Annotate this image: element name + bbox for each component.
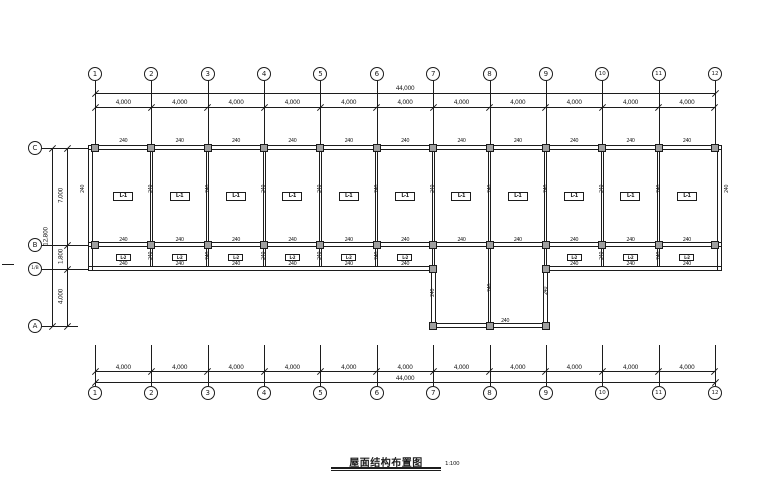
beam-label: 240 [148, 181, 154, 197]
beam-label: 240 [228, 138, 244, 144]
slab-label: L-2 [116, 254, 131, 261]
column-marker [542, 322, 550, 330]
axis-bubble: 10 [595, 386, 609, 400]
dimension-label: 4,000 [208, 99, 264, 106]
beam-label: 240 [566, 261, 582, 267]
column-marker [91, 241, 99, 249]
axis-bubble: 7 [426, 67, 440, 81]
grid-line [95, 81, 96, 144]
beam-label: 240 [453, 138, 469, 144]
beam-label: 240 [679, 261, 695, 267]
slab-label: L-2 [228, 254, 243, 261]
column-marker [486, 144, 494, 152]
dimension-line [95, 107, 715, 108]
axis-bubble: 5 [313, 67, 327, 81]
dimension-label: 4,000 [321, 364, 377, 371]
beam-label: 240 [656, 181, 662, 197]
axis-bubble: 1/B [28, 262, 42, 276]
beam-label: 240 [656, 248, 662, 264]
dimension-label: 4,000 [377, 364, 433, 371]
beam-label: 240 [317, 248, 323, 264]
axis-bubble: 2 [144, 67, 158, 81]
slab-label: L-1 [282, 192, 302, 201]
slab-label: L-1 [113, 192, 133, 201]
grid-line [715, 345, 716, 386]
wall-line [88, 145, 93, 271]
axis-bubble: 12 [708, 386, 722, 400]
grid-line [715, 81, 716, 144]
axis-bubble: 6 [370, 386, 384, 400]
axis-bubble: A [28, 319, 42, 333]
dimension-label: 4,000 [546, 99, 602, 106]
beam-label: 240 [543, 283, 549, 299]
column-marker [429, 265, 437, 273]
axis-bubble: 10 [595, 67, 609, 81]
beam-label: 240 [679, 237, 695, 243]
beam-label: 240 [148, 248, 154, 264]
axis-bubble: 1 [88, 67, 102, 81]
grid-line [433, 81, 434, 144]
column-marker [260, 144, 268, 152]
axis-bubble: 4 [257, 386, 271, 400]
axis-bubble: 2 [144, 386, 158, 400]
wall-line [717, 145, 722, 271]
beam-label: 240 [80, 181, 86, 197]
slab-label: L-1 [226, 192, 246, 201]
column-marker [542, 265, 550, 273]
dimension-label: 4,000 [95, 99, 151, 106]
grid-line [151, 81, 152, 144]
beam-label: 240 [566, 138, 582, 144]
axis-bubble: B [28, 238, 42, 252]
axis-bubble: 6 [370, 67, 384, 81]
beam-label: 240 [341, 138, 357, 144]
beam-label: 240 [228, 237, 244, 243]
beam-label: 240 [374, 248, 380, 264]
grid-line [264, 81, 265, 144]
beam-label: 240 [487, 280, 493, 296]
drawing-canvas: 屋面结构布置图 1:100 12345678910111244,0004,000… [0, 0, 780, 496]
beam-label: 240 [622, 237, 638, 243]
dimension-label: 4,000 [377, 99, 433, 106]
axis-bubble: 5 [313, 386, 327, 400]
column-marker [486, 241, 494, 249]
beam-label: 240 [453, 237, 469, 243]
beam-label: 240 [430, 181, 436, 197]
beam-label: 240 [487, 181, 493, 197]
dimension-label: 4,000 [602, 364, 658, 371]
beam-label: 240 [172, 237, 188, 243]
beam-label: 240 [566, 237, 582, 243]
beam-label: 240 [115, 237, 131, 243]
dimension-label: 4,000 [264, 364, 320, 371]
beam-label: 240 [205, 181, 211, 197]
slab-label: L-2 [285, 254, 300, 261]
dimension-label: 4,000 [321, 99, 377, 106]
beam-label: 240 [599, 248, 605, 264]
wall-line [88, 266, 436, 271]
dimension-label: 4,000 [95, 364, 151, 371]
beam-label: 240 [115, 138, 131, 144]
beam-label: 240 [374, 181, 380, 197]
beam-label: 240 [284, 237, 300, 243]
dimension-label: 44,000 [377, 375, 433, 382]
slab-label: L-2 [623, 254, 638, 261]
dimension-label: 4,000 [152, 364, 208, 371]
beam-label: 240 [510, 138, 526, 144]
dimension-label: 4,000 [546, 364, 602, 371]
dimension-label: 4,000 [490, 364, 546, 371]
axis-bubble: 1 [88, 386, 102, 400]
beam-label: 240 [284, 138, 300, 144]
beam-label: 240 [679, 138, 695, 144]
beam-label: 240 [172, 138, 188, 144]
slab-label: L-1 [620, 192, 640, 201]
grid-line [546, 81, 547, 144]
slab-label: L-1 [508, 192, 528, 201]
grid-line [208, 81, 209, 144]
axis-bubble: 9 [539, 386, 553, 400]
wall-line [88, 242, 722, 247]
beam-label: 240 [115, 261, 131, 267]
title-underline [331, 467, 441, 469]
column-marker [655, 144, 663, 152]
beam-label: 240 [341, 237, 357, 243]
column-marker [542, 241, 550, 249]
slab-label: L-2 [567, 254, 582, 261]
dimension-label: 44,000 [377, 85, 433, 92]
column-marker [91, 144, 99, 152]
grid-line [602, 81, 603, 144]
dimension-line [95, 382, 715, 383]
axis-bubble: 7 [426, 386, 440, 400]
column-marker [429, 241, 437, 249]
axis-bubble: 3 [201, 386, 215, 400]
column-marker [711, 144, 719, 152]
slab-label: L-1 [170, 192, 190, 201]
beam-label: 240 [622, 138, 638, 144]
dimension-line [95, 93, 715, 94]
dimension-label: 4,000 [659, 99, 715, 106]
axis-bubble: 11 [652, 67, 666, 81]
beam-label: 240 [724, 181, 730, 197]
dimension-label: 4,000 [433, 99, 489, 106]
wall-line [88, 145, 722, 150]
title-underline-thin [331, 470, 441, 471]
column-marker [542, 144, 550, 152]
column-marker [316, 144, 324, 152]
beam-label: 240 [397, 261, 413, 267]
axis-bubble: 8 [483, 386, 497, 400]
dimension-line [67, 148, 68, 326]
slab-label: L-1 [395, 192, 415, 201]
partition-line [432, 247, 435, 266]
grid-line [320, 81, 321, 144]
beam-label: 240 [317, 181, 323, 197]
slab-label: L-1 [564, 192, 584, 201]
beam-label: 240 [622, 261, 638, 267]
beam-label: 240 [397, 138, 413, 144]
beam-label: 240 [205, 248, 211, 264]
column-marker [147, 144, 155, 152]
slab-label: L-2 [172, 254, 187, 261]
dimension-label: 4,000 [264, 99, 320, 106]
column-marker [429, 322, 437, 330]
beam-label: 240 [228, 261, 244, 267]
slab-label: L-1 [339, 192, 359, 201]
column-marker [486, 322, 494, 330]
slab-label: L-2 [679, 254, 694, 261]
beam-label: 240 [261, 248, 267, 264]
column-marker [204, 144, 212, 152]
dimension-label: 4,000 [152, 99, 208, 106]
beam-label: 240 [430, 285, 436, 301]
dimension-label: 4,000 [490, 99, 546, 106]
column-marker [711, 241, 719, 249]
dimension-label: 7,000 [58, 168, 65, 224]
drawing-scale: 1:100 [445, 461, 459, 467]
axis-bubble: C [28, 141, 42, 155]
grid-line [490, 81, 491, 144]
beam-label: 240 [510, 237, 526, 243]
dimension-label: 4,000 [58, 269, 65, 325]
slab-label: L-1 [677, 192, 697, 201]
dimension-line [95, 371, 715, 372]
beam-label: 240 [172, 261, 188, 267]
edge-mark [2, 264, 14, 265]
dimension-label: 4,000 [433, 364, 489, 371]
beam-label: 240 [543, 181, 549, 197]
beam-label: 240 [599, 181, 605, 197]
beam-label: 240 [341, 261, 357, 267]
grid-line [42, 326, 78, 327]
dimension-label: 12,800 [43, 208, 50, 264]
axis-bubble: 9 [539, 67, 553, 81]
beam-label: 240 [497, 318, 513, 324]
beam-label: 240 [261, 181, 267, 197]
slab-label: L-2 [341, 254, 356, 261]
slab-label: L-2 [397, 254, 412, 261]
partition-line [544, 247, 547, 266]
column-marker [373, 144, 381, 152]
axis-bubble: 11 [652, 386, 666, 400]
dimension-label: 4,000 [659, 364, 715, 371]
grid-line [659, 81, 660, 144]
column-marker [598, 144, 606, 152]
column-marker [429, 144, 437, 152]
title-block: 屋面结构布置图 1:100 [333, 454, 483, 478]
axis-bubble: 12 [708, 67, 722, 81]
dimension-line [52, 148, 53, 326]
dimension-label: 4,000 [602, 99, 658, 106]
beam-label: 240 [284, 261, 300, 267]
beam-label: 240 [397, 237, 413, 243]
slab-label: L-1 [451, 192, 471, 201]
axis-bubble: 4 [257, 67, 271, 81]
axis-bubble: 8 [483, 67, 497, 81]
axis-bubble: 3 [201, 67, 215, 81]
dimension-label: 4,000 [208, 364, 264, 371]
